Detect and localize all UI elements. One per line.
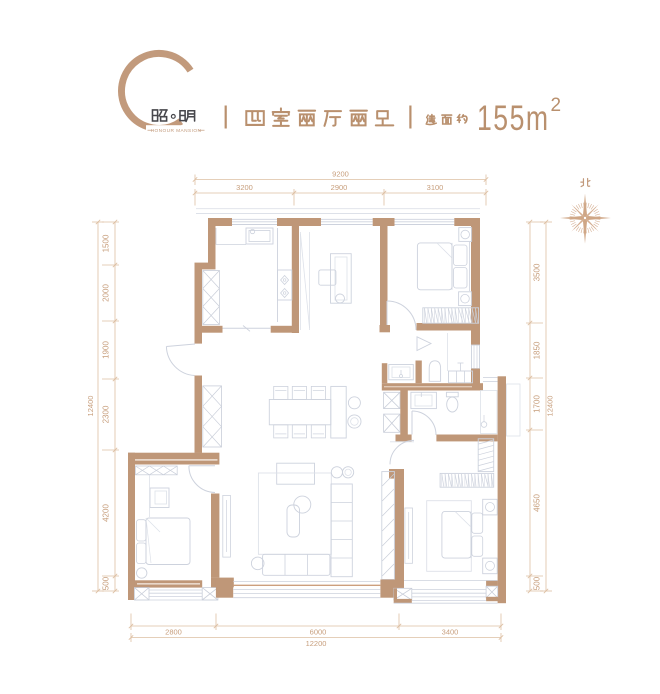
svg-text:3500: 3500 [533,263,542,281]
svg-text:3200: 3200 [236,183,253,192]
svg-text:2300: 2300 [102,405,111,423]
svg-text:2800: 2800 [165,628,182,637]
svg-text:1900: 1900 [102,341,111,359]
svg-text:2: 2 [551,95,562,116]
svg-text:12400: 12400 [546,396,555,417]
svg-text:1500: 1500 [102,234,111,252]
svg-text:2000: 2000 [102,284,111,302]
svg-text:4200: 4200 [102,504,111,522]
svg-text:500: 500 [533,576,542,590]
svg-text:4650: 4650 [533,494,542,512]
svg-text:500: 500 [102,576,111,590]
svg-text:3400: 3400 [442,628,459,637]
svg-text:9200: 9200 [332,170,349,179]
svg-text:1850: 1850 [533,341,542,359]
svg-text:2900: 2900 [331,183,348,192]
svg-text:12200: 12200 [306,639,327,648]
svg-text:HONOUR MANSION: HONOUR MANSION [151,128,202,134]
svg-text:155m: 155m [477,98,550,137]
svg-text:6000: 6000 [310,628,327,637]
svg-text:1700: 1700 [533,395,542,413]
svg-text:3100: 3100 [427,183,444,192]
svg-text:12400: 12400 [86,396,95,417]
